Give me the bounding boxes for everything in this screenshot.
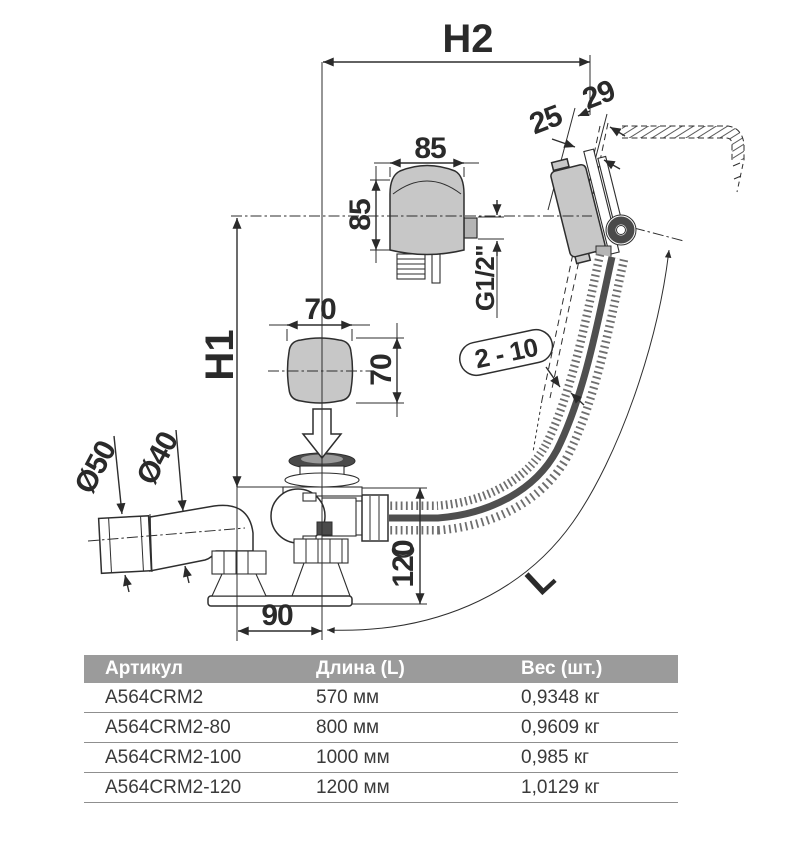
outlet-elbow — [99, 505, 266, 596]
hose-nut — [362, 495, 388, 541]
dim-label-90: 90 — [261, 599, 293, 632]
col-header-length: Длина (L) — [295, 658, 500, 680]
dim-label-70-width: 70 — [304, 293, 336, 326]
dim-label-85-height: 85 — [344, 199, 377, 231]
tub-rim-section — [622, 126, 744, 192]
elbow-nut-cone — [212, 551, 266, 596]
overflow-head-unit — [547, 147, 629, 265]
cell-article: A564CRM2-120 — [84, 777, 295, 799]
table-row: A564CRM2 570 мм 0,9348 кг — [84, 683, 678, 713]
cell-article: A564CRM2 — [84, 687, 295, 709]
dim-label-h2: H2 — [442, 17, 493, 61]
dim-label-h1: H1 — [198, 329, 242, 380]
overflow-outlet-ring — [606, 215, 636, 245]
cell-weight: 0,9348 кг — [500, 687, 678, 709]
cell-weight: 0,985 кг — [500, 747, 678, 769]
table-row: A564CRM2-100 1000 мм 0,985 кг — [84, 743, 678, 773]
spec-table: Артикул Длина (L) Вес (шт.) A564CRM2 570… — [84, 655, 678, 803]
wall-range-callout: 2 - 10 — [457, 327, 556, 379]
cell-article: A564CRM2-80 — [84, 717, 295, 739]
cable-end — [317, 522, 332, 535]
table-row: A564CRM2-80 800 мм 0,9609 кг — [84, 713, 678, 743]
hose-length-curve — [327, 228, 684, 630]
corrugated-hose — [389, 257, 612, 518]
knob-body — [390, 166, 464, 255]
knob-stem — [432, 254, 440, 283]
dim-label-g12: G1/2" — [470, 245, 500, 311]
cell-length: 800 мм — [295, 717, 500, 739]
knob-side-connector — [464, 218, 477, 238]
dim-label-85-width: 85 — [414, 132, 446, 165]
col-header-weight: Вес (шт.) — [500, 658, 678, 680]
table-row: A564CRM2-120 1200 мм 1,0129 кг — [84, 773, 678, 803]
cell-weight: 1,0129 кг — [500, 777, 678, 799]
dim-label-29: 29 — [578, 74, 619, 116]
dim-label-70-height: 70 — [365, 354, 398, 386]
dim-label-wall-range: 2 - 10 — [472, 332, 540, 375]
cell-length: 1200 мм — [295, 777, 500, 799]
dim-label-25: 25 — [525, 99, 566, 141]
tailpiece-nut-cone — [292, 539, 350, 596]
page: 2 - 10 H2 H1 29 25 85 85 G1/2" 70 70 Ø50… — [0, 0, 811, 841]
knob-thread — [397, 254, 425, 279]
col-header-article: Артикул — [84, 658, 295, 680]
technical-drawing: 2 - 10 H2 H1 29 25 85 85 G1/2" 70 70 Ø50… — [0, 0, 811, 650]
cell-length: 1000 мм — [295, 747, 500, 769]
overflow-knob-detail — [390, 166, 477, 284]
cell-length: 570 мм — [295, 687, 500, 709]
dim-label-length: L — [518, 557, 564, 604]
cell-weight: 0,9609 кг — [500, 717, 678, 739]
cell-article: A564CRM2-100 — [84, 747, 295, 769]
dim-label-120: 120 — [387, 540, 420, 587]
spec-table-header: Артикул Длина (L) Вес (шт.) — [84, 655, 678, 683]
